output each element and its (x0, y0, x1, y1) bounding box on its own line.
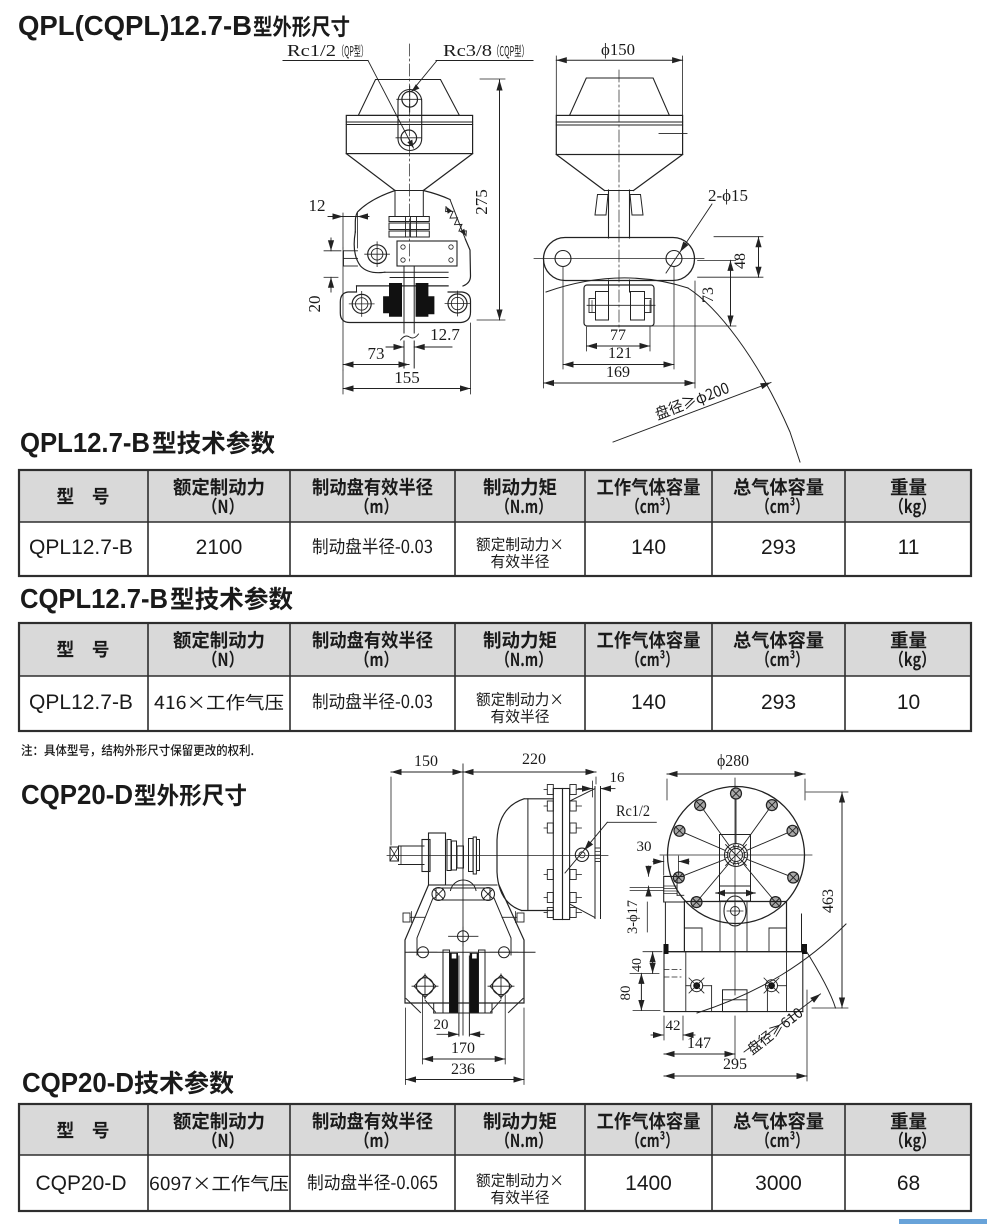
svg-text:463: 463 (820, 889, 837, 913)
svg-text:73: 73 (700, 287, 717, 303)
svg-text:140: 140 (631, 691, 666, 714)
svg-text:CQP20-D: CQP20-D (21, 779, 133, 810)
svg-text:236: 236 (451, 1061, 475, 1078)
svg-text:2100: 2100 (196, 536, 243, 559)
svg-text:16: 16 (610, 770, 626, 786)
svg-text:150: 150 (414, 753, 438, 770)
svg-text:2-ϕ15: 2-ϕ15 (708, 186, 748, 205)
svg-text:293: 293 (761, 691, 796, 714)
svg-text:CQP20-D: CQP20-D (22, 1067, 134, 1098)
svg-text:Rc3/8: Rc3/8 (443, 41, 492, 60)
svg-text:QPL12.7-B: QPL12.7-B (29, 536, 133, 559)
svg-text:170: 170 (451, 1040, 475, 1057)
svg-text:3-ϕ17: 3-ϕ17 (625, 900, 641, 934)
svg-text:68: 68 (897, 1172, 920, 1195)
svg-text:ϕ280: ϕ280 (717, 751, 749, 770)
svg-text:140: 140 (631, 536, 666, 559)
svg-text:121: 121 (608, 345, 632, 362)
svg-text:10: 10 (897, 691, 920, 714)
svg-text:220: 220 (522, 751, 546, 768)
svg-text:Rc1/2: Rc1/2 (616, 803, 650, 820)
svg-text:3000: 3000 (755, 1172, 802, 1195)
svg-text:QPL(CQPL)12.7-B: QPL(CQPL)12.7-B (18, 10, 252, 41)
svg-text:11: 11 (898, 536, 920, 559)
svg-text:CQPL12.7-B: CQPL12.7-B (20, 583, 168, 614)
svg-text:48: 48 (732, 253, 749, 269)
svg-text:1400: 1400 (625, 1172, 672, 1195)
svg-text:12.7: 12.7 (430, 325, 460, 344)
svg-text:40: 40 (630, 958, 645, 972)
svg-text:295: 295 (723, 1056, 747, 1073)
svg-text:275: 275 (472, 189, 491, 215)
svg-text:169: 169 (606, 364, 630, 381)
svg-text:80: 80 (618, 986, 634, 1001)
svg-text:42: 42 (666, 1018, 681, 1034)
svg-text:QPL12.7-B: QPL12.7-B (29, 691, 133, 714)
svg-text:ϕ150: ϕ150 (601, 40, 635, 59)
svg-text:CQP20-D: CQP20-D (35, 1172, 126, 1195)
svg-text:QPL12.7-B: QPL12.7-B (20, 427, 150, 458)
svg-text:20: 20 (434, 1017, 449, 1033)
svg-text:30: 30 (637, 839, 652, 855)
svg-text:293: 293 (761, 536, 796, 559)
svg-text:77: 77 (610, 327, 626, 344)
svg-text:12: 12 (309, 196, 326, 215)
svg-text:20: 20 (305, 296, 324, 313)
svg-text:147: 147 (687, 1035, 711, 1052)
svg-text:155: 155 (394, 368, 420, 387)
svg-text:Rc1/2: Rc1/2 (287, 41, 336, 60)
svg-text:73: 73 (368, 344, 385, 363)
